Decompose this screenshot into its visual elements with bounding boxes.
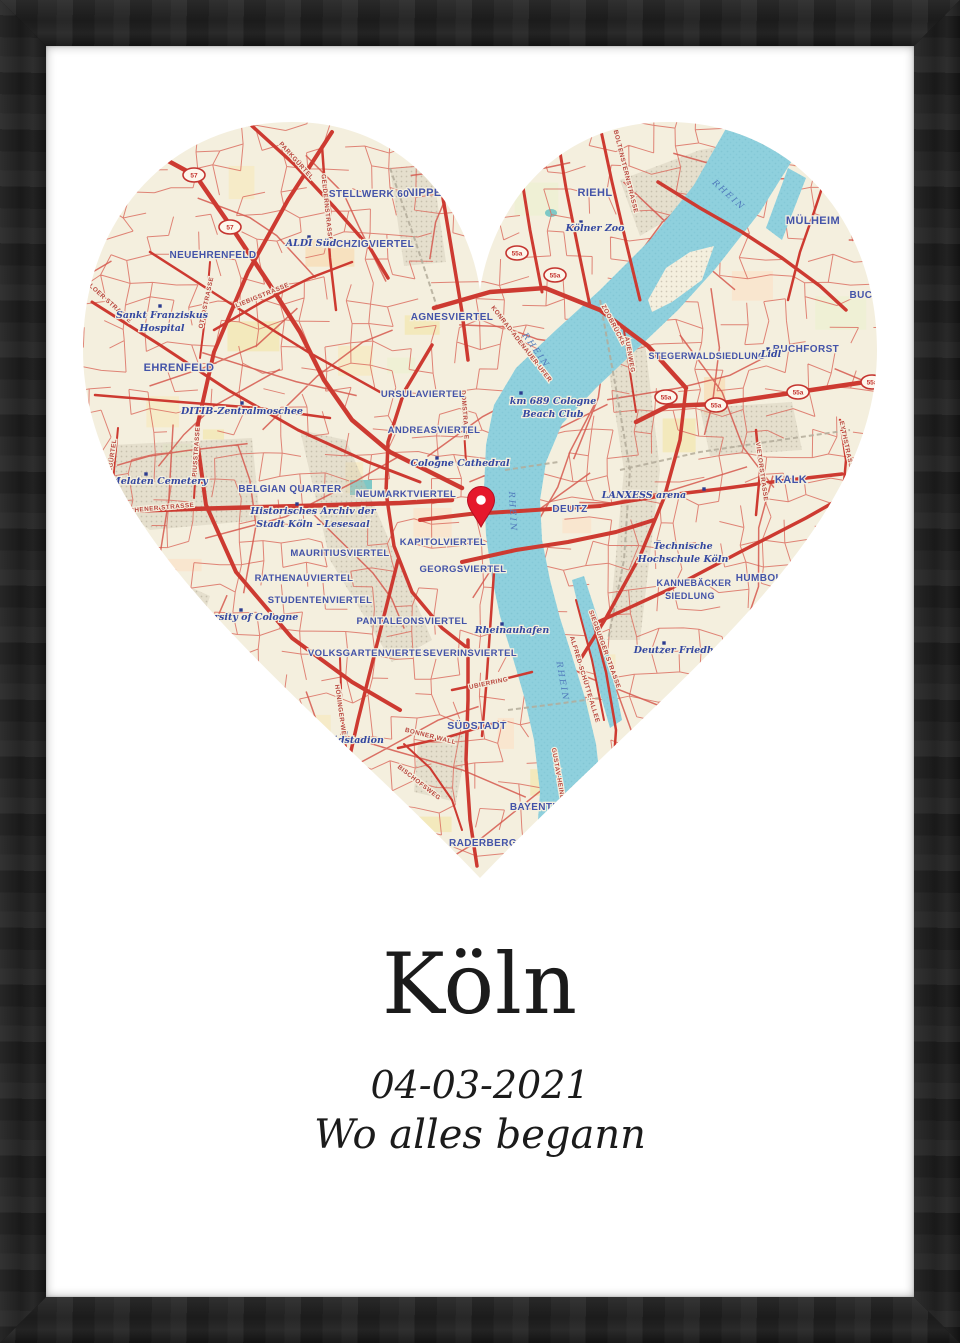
map-label-poi: Beach Club (522, 409, 584, 420)
map-label-poi: Hospital (138, 323, 184, 334)
map-label-poi: Lidl (760, 349, 782, 360)
map-label-poi: Hochschule Köln (637, 554, 729, 565)
svg-text:55a: 55a (661, 394, 672, 401)
route-shield: 55a (705, 398, 727, 412)
map-label-poi: Historisches Archiv der (249, 506, 376, 517)
map-label-district: STELLWERK 60 (329, 189, 409, 200)
map-label-district: STUDENTENVIERTEL (268, 595, 373, 606)
map-label-district: NIPPES (407, 187, 450, 199)
map-label-poi: Deutzer Friedhof (633, 645, 726, 656)
frame-bottom (0, 1297, 960, 1343)
map-label-district: SIEDLUNG (665, 591, 715, 601)
city-title: Köln (46, 938, 914, 1030)
map-label-poi: Kölner Zoo (565, 223, 626, 234)
map-label-district: ANDREASVIERTEL (388, 425, 481, 436)
map-label-district: BUCHFORST (773, 344, 839, 355)
map-label-poi: Cologne Cathedral (410, 458, 510, 469)
frame-right (914, 0, 960, 1343)
route-shield: 55a (787, 385, 809, 399)
map-label-district: PANTALEONSVIERTEL (357, 616, 468, 627)
map-label-poi: DITIB-Zentralmoschee (180, 406, 303, 417)
svg-text:55a: 55a (711, 402, 722, 409)
map-label-poi: ALDI Süd (285, 238, 337, 249)
map-label-district: HUMBOLDT (736, 573, 796, 584)
map-label-poi: km 689 Cologne (510, 396, 597, 407)
date-text: 04-03-2021 (46, 1064, 914, 1108)
map-label-district: DEUTZ (552, 504, 587, 515)
map-label-district: STEGERWALDSIEDLUNG (648, 351, 765, 361)
map-label-district: KANNEBÄCKER (657, 578, 732, 588)
map-label-district: BUCHHEIM (849, 290, 906, 301)
map-label-district: GEORGSVIERTEL (419, 564, 506, 575)
map-label-district: BAYENTHAL (510, 802, 574, 813)
map-label-district: VOLKSGARTENVIERTEL (308, 648, 428, 659)
map-label-district: NEUEHRENFELD (169, 250, 256, 261)
route-shield: 55a (506, 246, 528, 260)
map-label-district: URSULAVIERTEL (381, 389, 465, 400)
map-label-district: STÖCKCHEN (494, 132, 561, 145)
route-shield: 57 (219, 220, 241, 234)
svg-text:57: 57 (190, 172, 198, 179)
svg-text:55a: 55a (793, 389, 804, 396)
map-label-district: RADERBERG (449, 838, 517, 849)
svg-text:55a: 55a (550, 272, 561, 279)
map-label-district: BELGIAN QUARTER (238, 484, 342, 495)
map-label-poi: University of Cologne (184, 612, 299, 623)
poster-photo: { "poster": { "city": "Köln", "date": "0… (0, 0, 960, 1343)
map-label-district: RATHENAUVIERTEL (255, 573, 354, 584)
map-label-district: KAPITOLVIERTEL (400, 537, 487, 548)
map-label-poi: Sankt Franziskus (116, 310, 209, 321)
caption-text: Wo alles begann (46, 1112, 914, 1158)
map-label-poi: Südstadion (324, 735, 384, 746)
svg-text:55a: 55a (512, 250, 523, 257)
route-shield: 55a (655, 390, 677, 404)
map-label-poi: Stadt Köln – Lesesaal (256, 519, 370, 530)
map-label-poi: Technische (653, 541, 712, 552)
frame-left (0, 0, 46, 1343)
map-label-district: NEUMARKTVIERTEL (356, 489, 456, 500)
map-label-district: EHRENFELD (144, 362, 215, 374)
map-label-district: AGNESVIERTEL (411, 312, 494, 323)
map-label-district: SÜDSTADT (447, 719, 507, 732)
map-label-district: KALK (775, 474, 807, 486)
frame-top (0, 0, 960, 46)
svg-text:55a: 55a (867, 379, 878, 386)
route-shield: 55a (544, 268, 566, 282)
svg-text:57: 57 (226, 224, 234, 231)
map-label-poi: LANXESS arena (601, 490, 686, 501)
route-shield: 55a (861, 375, 883, 389)
map-label-poi: Melaten Cemetery (109, 476, 209, 487)
map-label-poi: Rheinauhafen (474, 625, 550, 636)
route-shield: 57 (183, 168, 205, 182)
map-label-district: MÜLHEIM (786, 214, 840, 227)
map-label-district: SEVERINSVIERTEL (423, 648, 517, 659)
map-label-district: MAURITIUSVIERTEL (290, 548, 389, 559)
map-label-district: RIEHL (578, 187, 613, 199)
title-block: Köln 04-03-2021 Wo alles begann (46, 938, 914, 1158)
